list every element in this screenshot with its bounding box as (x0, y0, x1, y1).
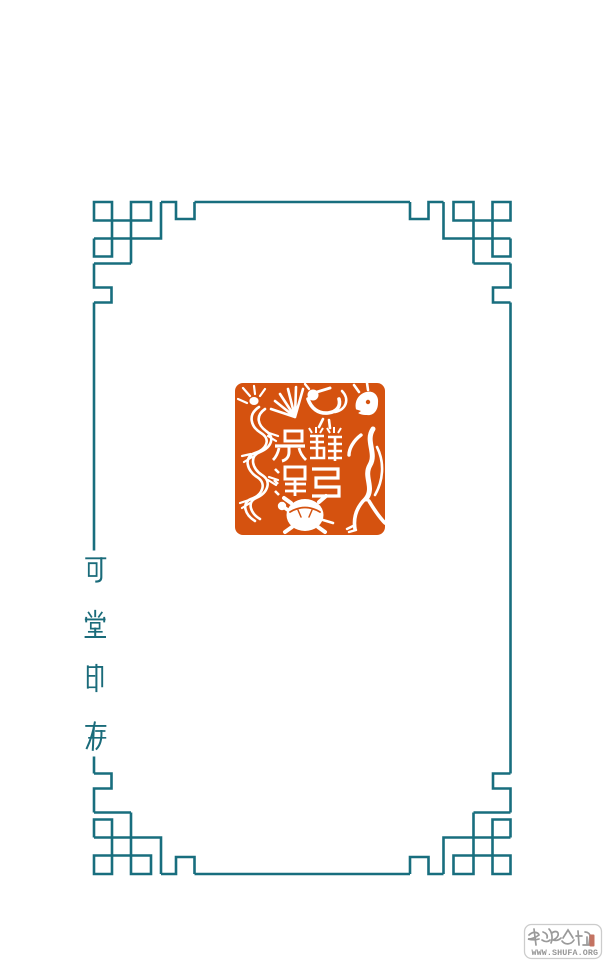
svg-text:WWW.SHUFA.ORG: WWW.SHUFA.ORG (532, 948, 599, 958)
